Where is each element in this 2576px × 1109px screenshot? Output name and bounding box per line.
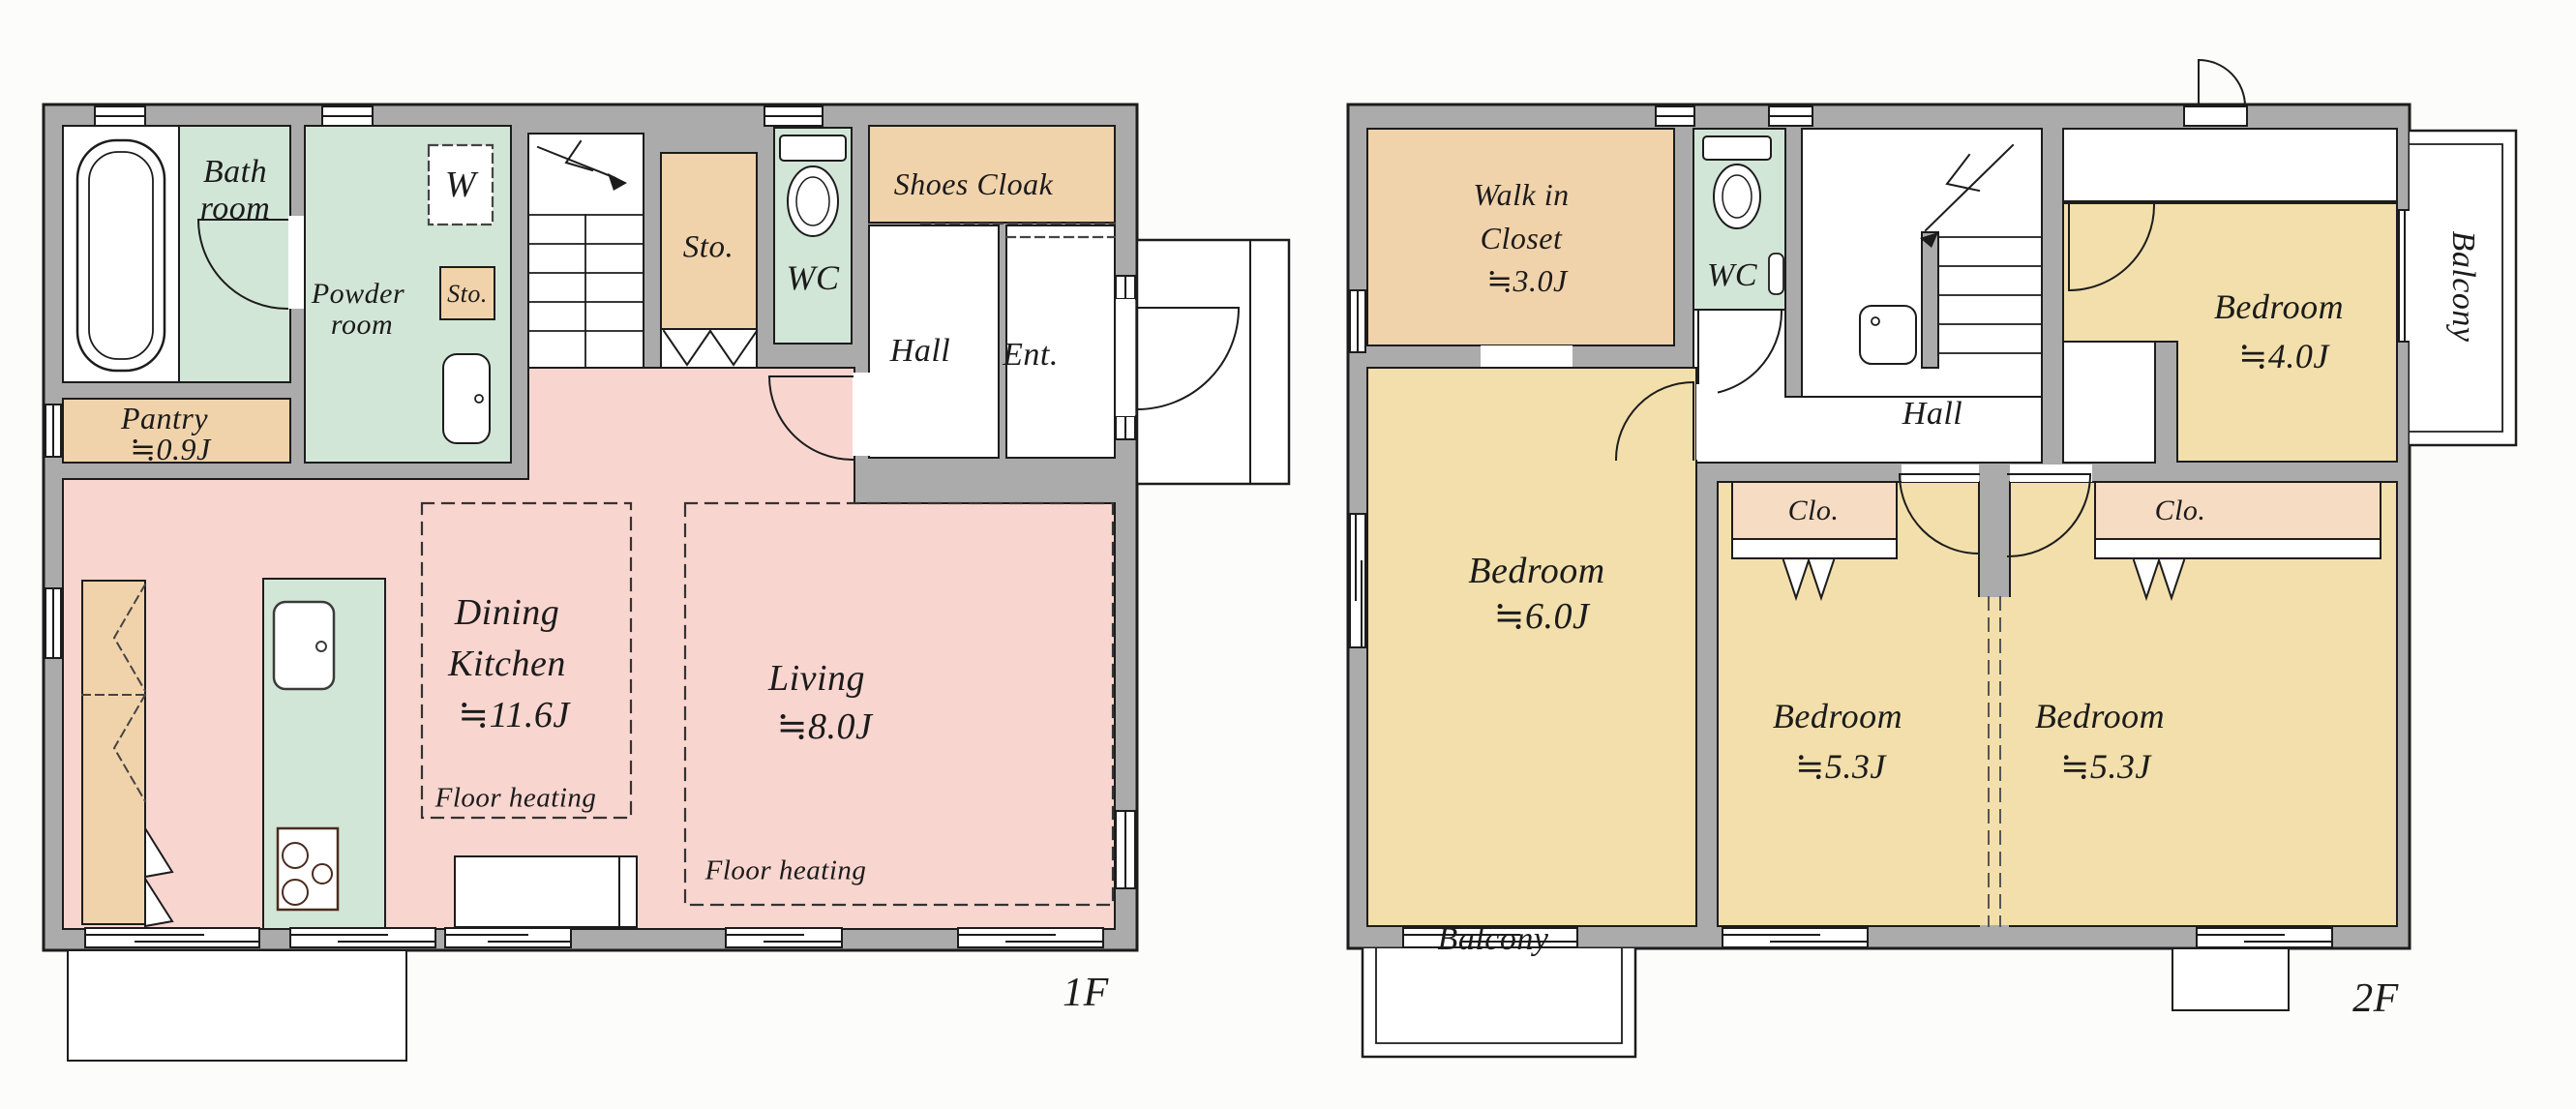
bedroom5-right-label-line1: Bedroom (2035, 699, 2165, 734)
pantry-label-line1: Pantry (121, 403, 208, 434)
washer-label: W (445, 166, 476, 203)
f2-landing (2063, 129, 2397, 201)
bath-room-label-line2: room (200, 193, 271, 225)
floorplan-page: Bath room Pantry ≒0.9J Powder room W Sto… (0, 0, 2576, 1109)
stove-icon (278, 828, 338, 910)
wc-2f-label: WC (1707, 259, 1757, 292)
f2-roof-access-door (2184, 60, 2247, 126)
living-label-line1: Living (768, 660, 865, 697)
f1-counter-end (619, 856, 637, 927)
floor-2f-label: 2F (2352, 978, 2399, 1019)
balcony-bottom-label: Balcony (1438, 923, 1549, 956)
f1-stairs (528, 134, 644, 368)
f2-bedroom-6j (1367, 368, 1696, 926)
wc-1f-label: WC (787, 260, 840, 295)
bedroom5-left-label-line1: Bedroom (1773, 699, 1902, 734)
powder-room-label-line1: Powder (312, 280, 404, 309)
f2-partition-open (1977, 597, 2012, 925)
f1-entrance-porch (1137, 240, 1289, 484)
living-floor-heating-label: Floor heating (705, 857, 867, 885)
bedroom4-label-line1: Bedroom (2214, 289, 2344, 324)
floorplan-graphics (0, 0, 2576, 1109)
bedroom5-right-label-line2: ≒5.3J (2060, 749, 2151, 784)
f1-storage-folding-door (661, 329, 757, 368)
dining-kitchen-label-line3: ≒11.6J (458, 697, 569, 734)
entrance-label: Ent. (1003, 339, 1059, 372)
bedroom4-label-line2: ≒4.0J (2238, 339, 2329, 374)
hall-1f-label: Hall (890, 335, 950, 368)
f2-stairs (1802, 129, 2042, 397)
bedroom5-left-label-line2: ≒5.3J (1795, 749, 1886, 784)
living-label-line2: ≒8.0J (777, 708, 873, 745)
dining-kitchen-label-line2: Kitchen (448, 645, 566, 682)
floor-1f-label: 1F (1063, 973, 1109, 1013)
f2-hall-nook (2063, 342, 2155, 463)
walk-in-closet-label-line2: Closet (1481, 223, 1563, 254)
walk-in-closet-label-line3: ≒3.0J (1486, 265, 1568, 296)
pantry-label-line2: ≒0.9J (130, 434, 211, 465)
f1-terrace (68, 950, 406, 1061)
hall-2f-label: Hall (1902, 398, 1962, 431)
closet-left-label: Clo. (1788, 496, 1840, 525)
floor-1f-plan (44, 105, 1289, 1061)
dk-floor-heating-label: Floor heating (435, 785, 597, 813)
dining-kitchen-label-line1: Dining (455, 594, 560, 631)
washbasin-2f-icon (1860, 306, 1916, 364)
bathtub-icon (77, 140, 165, 371)
closet-right-label: Clo. (2155, 496, 2206, 525)
walk-in-closet-label-line1: Walk in (1473, 179, 1569, 210)
storage-small-label: Sto. (447, 282, 488, 307)
bedroom6-label-line1: Bedroom (1468, 553, 1604, 589)
f2-balcony-bottom (1363, 948, 1635, 1057)
kitchen-sink-icon (274, 602, 334, 689)
f1-counter (455, 856, 619, 927)
bedroom6-label-line2: ≒6.0J (1494, 598, 1590, 635)
washbasin-icon (443, 354, 490, 443)
storage-label: Sto. (683, 232, 734, 264)
bath-room-label-line1: Bath (203, 156, 267, 189)
balcony-right-label: Balcony (2446, 231, 2479, 343)
powder-room-label-line2: room (331, 311, 393, 340)
shoes-cloak-label: Shoes Cloak (894, 168, 1054, 199)
f2-step-box (2172, 948, 2289, 1010)
